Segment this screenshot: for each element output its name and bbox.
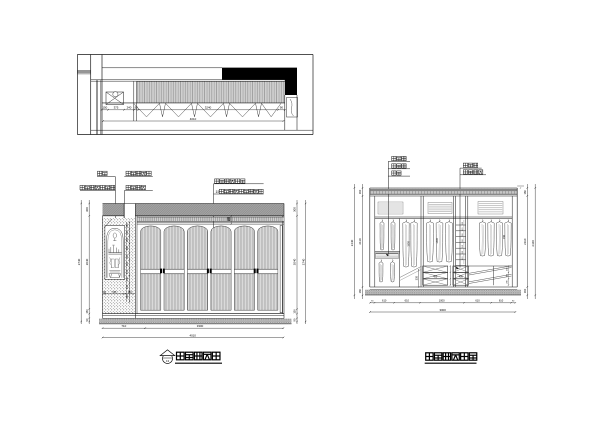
svg-text:240: 240 bbox=[127, 106, 132, 110]
svg-text:150: 150 bbox=[125, 269, 129, 274]
svg-text:350: 350 bbox=[462, 239, 464, 242]
svg-text:140: 140 bbox=[128, 291, 133, 294]
svg-text:90: 90 bbox=[280, 106, 284, 110]
svg-text:380: 380 bbox=[125, 245, 129, 250]
svg-text:160: 160 bbox=[523, 288, 527, 293]
svg-text:140: 140 bbox=[125, 284, 129, 289]
svg-text:15: 15 bbox=[216, 190, 220, 194]
svg-text:610: 610 bbox=[499, 299, 504, 303]
svg-text:240: 240 bbox=[125, 276, 129, 281]
svg-text:350: 350 bbox=[462, 222, 464, 225]
svg-text:1300: 1300 bbox=[436, 238, 439, 244]
svg-text:610: 610 bbox=[382, 299, 387, 303]
svg-text:1000: 1000 bbox=[439, 299, 445, 303]
svg-text:300: 300 bbox=[85, 207, 89, 212]
svg-text:350: 350 bbox=[462, 228, 464, 231]
svg-text:200: 200 bbox=[125, 254, 129, 259]
svg-text:280: 280 bbox=[125, 223, 129, 228]
svg-text:4010: 4010 bbox=[190, 117, 197, 121]
svg-text:2110: 2110 bbox=[358, 238, 362, 245]
svg-text:160: 160 bbox=[358, 189, 362, 194]
svg-text:710: 710 bbox=[121, 324, 126, 328]
svg-text:260: 260 bbox=[125, 237, 129, 242]
svg-text:610: 610 bbox=[475, 299, 480, 303]
svg-text:2110: 2110 bbox=[523, 238, 527, 245]
svg-text:2040: 2040 bbox=[293, 258, 297, 265]
svg-text:90: 90 bbox=[135, 106, 139, 110]
svg-text:350: 350 bbox=[462, 257, 464, 260]
svg-text:4010: 4010 bbox=[189, 333, 196, 337]
svg-text:350: 350 bbox=[462, 245, 464, 248]
svg-text:150: 150 bbox=[85, 309, 89, 314]
svg-text:3000: 3000 bbox=[439, 308, 446, 312]
svg-text:2040: 2040 bbox=[85, 258, 89, 265]
svg-text:2440: 2440 bbox=[531, 240, 535, 247]
svg-text:490: 490 bbox=[459, 276, 464, 279]
svg-text:350: 350 bbox=[462, 251, 464, 254]
svg-text:3300: 3300 bbox=[197, 324, 204, 328]
svg-text:2440: 2440 bbox=[350, 239, 354, 246]
svg-text:1500: 1500 bbox=[407, 241, 410, 247]
svg-text:300: 300 bbox=[125, 261, 129, 266]
svg-text:300: 300 bbox=[415, 276, 418, 281]
svg-text:490: 490 bbox=[433, 276, 438, 279]
svg-text:150: 150 bbox=[293, 309, 297, 314]
svg-text:160: 160 bbox=[358, 288, 362, 293]
svg-text:160: 160 bbox=[523, 190, 527, 195]
svg-text:2740: 2740 bbox=[301, 258, 305, 265]
svg-text:350: 350 bbox=[462, 234, 464, 237]
svg-text:300: 300 bbox=[293, 207, 297, 212]
svg-text:230: 230 bbox=[125, 230, 129, 235]
svg-text:2740: 2740 bbox=[77, 258, 81, 265]
svg-text:3240: 3240 bbox=[205, 106, 212, 110]
svg-text:610: 610 bbox=[405, 299, 410, 303]
svg-text:545: 545 bbox=[112, 291, 117, 294]
svg-text:375: 375 bbox=[114, 106, 119, 110]
svg-text:150: 150 bbox=[102, 106, 107, 110]
svg-text:280: 280 bbox=[125, 294, 129, 299]
svg-text:13: 13 bbox=[166, 359, 170, 363]
svg-text:700: 700 bbox=[503, 234, 506, 239]
